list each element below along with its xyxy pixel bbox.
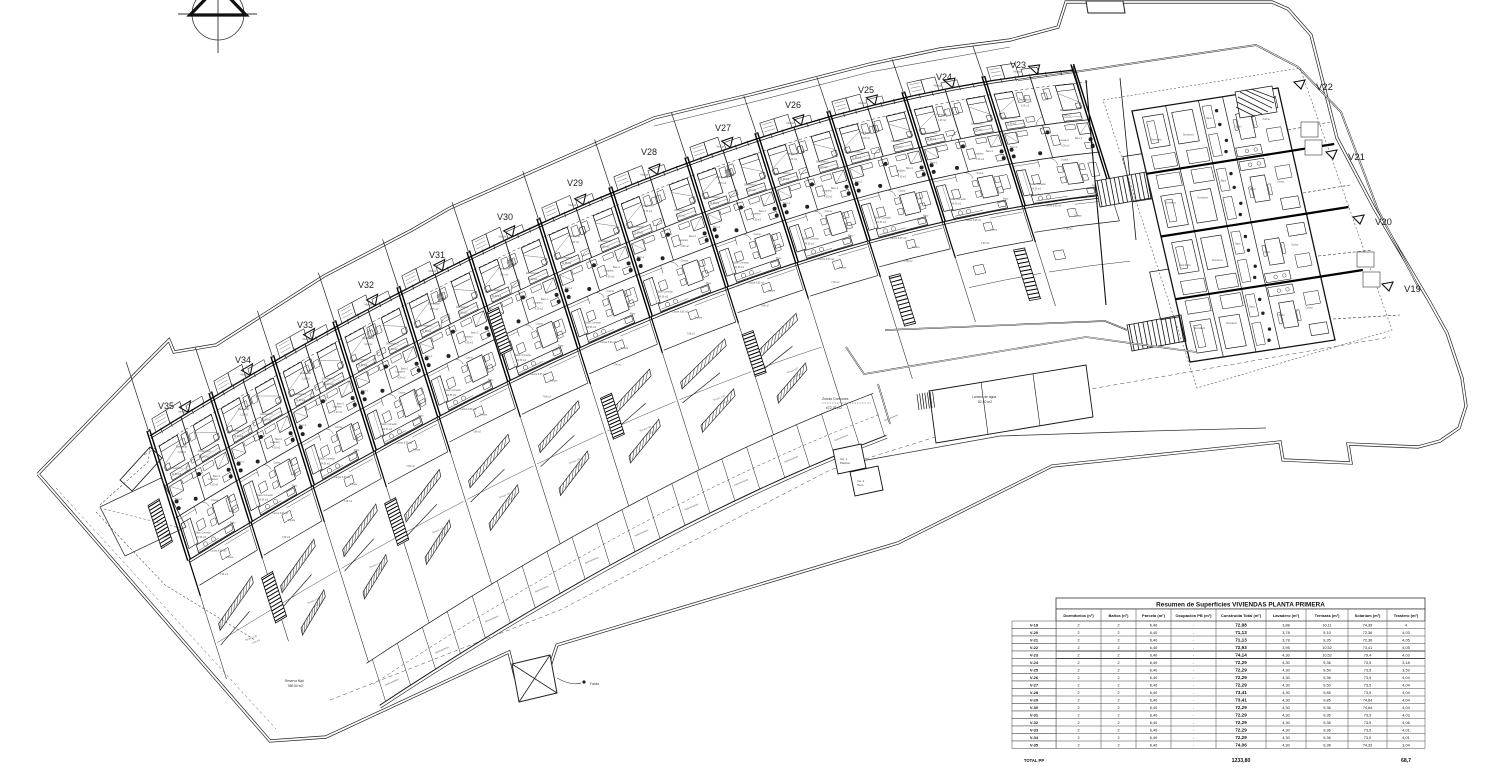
svg-text:Dormitorio 1: Dormitorio 1 — [1005, 117, 1018, 120]
svg-text:Bano 1: Bano 1 — [541, 299, 549, 301]
svg-text:9,36: 9,36 — [1323, 661, 1330, 665]
svg-text:Cocina: Cocina — [825, 211, 833, 213]
svg-text:Piscina: Piscina — [840, 461, 850, 465]
svg-text:3,25 m2: 3,25 m2 — [644, 211, 653, 213]
svg-text:Dormitorio: Dormitorio — [1151, 139, 1162, 142]
svg-text:V-27: V-27 — [1030, 682, 1039, 687]
svg-text:2: 2 — [1077, 721, 1079, 725]
svg-text:3,25 m2: 3,25 m2 — [430, 309, 439, 311]
svg-text:4,01: 4,01 — [1402, 736, 1409, 740]
svg-text:68,7: 68,7 — [1401, 758, 1411, 764]
svg-text:3,59: 3,59 — [1402, 668, 1409, 672]
svg-text:-: - — [1193, 728, 1195, 732]
svg-text:7,96 m2: 7,96 m2 — [831, 282, 840, 284]
svg-text:73,5: 73,5 — [1364, 668, 1371, 672]
svg-text:-: - — [1193, 623, 1195, 627]
svg-text:2: 2 — [1117, 691, 1119, 695]
svg-text:11,98 m2: 11,98 m2 — [852, 157, 862, 159]
svg-text:3,78: 3,78 — [1282, 631, 1289, 635]
svg-text:24,56 m2: 24,56 m2 — [383, 429, 393, 431]
svg-text:-: - — [1193, 661, 1195, 665]
svg-text:10,45 m2: 10,45 m2 — [458, 313, 468, 315]
svg-text:Terraza: Terraza — [912, 246, 920, 249]
svg-text:Dormitorio 1: Dormitorio 1 — [294, 393, 307, 396]
svg-text:Salon Comedor: Salon Comedor — [657, 291, 673, 294]
svg-text:Baños (nº): Baños (nº) — [1109, 613, 1130, 618]
svg-text:2: 2 — [1117, 698, 1119, 702]
svg-text:V-30: V-30 — [1030, 705, 1039, 710]
svg-text:Aparcamiento: Aparcamiento — [484, 615, 499, 624]
svg-text:Dormitorio 2: Dormitorio 2 — [526, 272, 539, 275]
svg-text:10,45 m2: 10,45 m2 — [1062, 116, 1072, 118]
svg-text:9,36: 9,36 — [1323, 676, 1330, 680]
svg-text:Bano 2: Bano 2 — [930, 163, 938, 165]
svg-text:Dormitorio: Dormitorio — [1194, 327, 1205, 330]
svg-text:Cocina 8,05 m2: Cocina 8,05 m2 — [748, 282, 765, 284]
svg-text:10,52: 10,52 — [1322, 653, 1332, 657]
svg-text:Paso: Paso — [630, 314, 636, 316]
svg-text:4,05: 4,05 — [1402, 646, 1409, 650]
svg-text:Paso: Paso — [1003, 199, 1009, 201]
svg-text:Dormitorio: Dormitorio — [1226, 322, 1237, 325]
svg-text:24,56 m2: 24,56 m2 — [659, 296, 669, 298]
svg-text:Terraza: Terraza — [1074, 214, 1082, 217]
svg-text:11,98 m2: 11,98 m2 — [358, 365, 368, 367]
svg-text:7,96 m2: 7,96 m2 — [981, 243, 990, 245]
svg-text:7,96 m2: 7,96 m2 — [282, 537, 291, 539]
svg-text:4,30 m2: 4,30 m2 — [753, 219, 762, 221]
svg-text:Mirador: Mirador — [787, 122, 795, 125]
svg-text:Cocina 8,05 m2: Cocina 8,05 m2 — [334, 477, 351, 479]
svg-text:Cocina: Cocina — [681, 261, 689, 263]
svg-text:73,41: 73,41 — [1235, 690, 1247, 695]
svg-text:Mirador: Mirador — [241, 374, 249, 377]
svg-text:11,98 m2: 11,98 m2 — [634, 232, 644, 234]
svg-text:Paso: Paso — [706, 283, 712, 285]
svg-text:Cocina 8,05 m2: Cocina 8,05 m2 — [965, 220, 982, 222]
svg-text:10,45 m2: 10,45 m2 — [200, 457, 210, 459]
svg-text:72,29: 72,29 — [1235, 712, 1247, 717]
svg-text:3,25 m2: 3,25 m2 — [240, 415, 249, 417]
svg-text:2: 2 — [1077, 736, 1079, 740]
svg-text:24,56 m2: 24,56 m2 — [587, 327, 597, 329]
svg-text:Terraza: Terraza — [838, 266, 846, 269]
svg-text:Aparcamiento: Aparcamiento — [584, 556, 599, 565]
svg-text:Mirador: Mirador — [365, 304, 373, 307]
svg-text:Lavadero: Lavadero — [533, 302, 543, 305]
svg-text:9,36: 9,36 — [1323, 706, 1330, 710]
svg-text:Salon Comedor: Salon Comedor — [445, 389, 461, 392]
svg-text:4,30: 4,30 — [1282, 691, 1289, 695]
svg-text:2: 2 — [1077, 706, 1079, 710]
svg-text:V19: V19 — [1404, 284, 1421, 295]
svg-text:4,30 m2: 4,30 m2 — [976, 159, 985, 161]
svg-text:3,88: 3,88 — [1282, 623, 1289, 627]
svg-text:Bano: Bano — [1221, 181, 1227, 183]
svg-text:-: - — [1193, 721, 1195, 725]
svg-text:2: 2 — [1117, 713, 1119, 717]
svg-text:4,30: 4,30 — [1282, 713, 1289, 717]
svg-text:Dormitorio 1: Dormitorio 1 — [356, 359, 369, 362]
svg-text:Lavadero: Lavadero — [974, 152, 984, 155]
svg-text:-: - — [1193, 668, 1195, 672]
svg-text:Bano 1: Bano 1 — [759, 211, 767, 213]
svg-text:73,5: 73,5 — [1364, 713, 1371, 717]
svg-text:Lavadero: Lavadero — [332, 405, 342, 408]
svg-text:Bano 1: Bano 1 — [689, 236, 697, 238]
svg-text:3,25 m2: 3,25 m2 — [364, 344, 373, 346]
svg-text:Terraza: Terraza — [349, 483, 357, 486]
svg-text:4,03: 4,03 — [1402, 653, 1409, 657]
svg-text:2: 2 — [1077, 713, 1079, 717]
svg-text:V-22: V-22 — [1030, 645, 1039, 650]
svg-text:Cocina 8,05 m2: Cocina 8,05 m2 — [210, 550, 227, 552]
svg-text:2: 2 — [1077, 623, 1079, 627]
svg-text:24,56 m2: 24,56 m2 — [197, 537, 207, 539]
svg-text:11,98 m2: 11,98 m2 — [492, 296, 502, 298]
svg-text:2: 2 — [1117, 653, 1119, 657]
svg-text:Dormitorio 2: Dormitorio 2 — [260, 413, 273, 416]
svg-text:73,5: 73,5 — [1364, 683, 1371, 687]
svg-text:Bano 2: Bano 2 — [565, 288, 573, 290]
svg-text:Dormitorios (nº): Dormitorios (nº) — [1063, 613, 1094, 618]
svg-text:Bano 1: Bano 1 — [986, 151, 994, 153]
svg-text:6,40: 6,40 — [1150, 683, 1157, 687]
svg-text:Bano 2: Bano 2 — [855, 181, 863, 183]
svg-text:V-23: V-23 — [1030, 652, 1039, 657]
svg-text:Cocina: Cocina — [1263, 119, 1271, 121]
svg-text:Distribuidor: Distribuidor — [569, 235, 581, 238]
svg-text:Terraza: Terraza — [989, 228, 997, 231]
svg-text:2: 2 — [1077, 653, 1079, 657]
svg-text:9,36: 9,36 — [1323, 743, 1330, 747]
svg-text:73,5: 73,5 — [1364, 661, 1371, 665]
svg-text:Cocina 8,05 m2: Cocina 8,05 m2 — [600, 342, 617, 344]
svg-text:V20: V20 — [1375, 217, 1392, 228]
svg-text:V-28: V-28 — [1030, 690, 1039, 695]
svg-text:74,06: 74,06 — [1235, 742, 1247, 747]
svg-text:Dormitorio 2: Dormitorio 2 — [322, 377, 335, 380]
svg-text:4,30 m2: 4,30 m2 — [1061, 146, 1070, 148]
svg-text:72,36: 72,36 — [1363, 631, 1373, 635]
svg-text:TOTAL PP: TOTAL PP — [1024, 758, 1044, 763]
svg-text:V33: V33 — [297, 320, 313, 330]
svg-text:7,96 m2: 7,96 m2 — [904, 261, 913, 263]
svg-text:Distribuidor: Distribuidor — [787, 153, 799, 156]
svg-text:Mirador: Mirador — [641, 174, 649, 177]
svg-text:73,5: 73,5 — [1364, 721, 1371, 725]
svg-text:4,04: 4,04 — [1402, 676, 1409, 680]
svg-text:Aparcamiento: Aparcamiento — [634, 529, 649, 538]
svg-text:Bano 1: Bano 1 — [906, 168, 914, 170]
svg-text:2: 2 — [1077, 646, 1079, 650]
svg-text:4,30: 4,30 — [1282, 668, 1289, 672]
svg-text:7,96 m2: 7,96 m2 — [543, 397, 552, 399]
svg-text:Salon Comedor: Salon Comedor — [733, 261, 749, 264]
svg-text:Mirador: Mirador — [934, 84, 942, 87]
svg-text:2: 2 — [1117, 631, 1119, 635]
svg-text:11,98 m2: 11,98 m2 — [422, 331, 432, 333]
svg-text:Cocina: Cocina — [1061, 159, 1069, 161]
svg-text:Bano 2: Bano 2 — [1010, 147, 1018, 149]
svg-text:V28: V28 — [641, 147, 657, 157]
svg-text:Cocina 8,05 m2: Cocina 8,05 m2 — [272, 513, 289, 515]
svg-text:-: - — [1193, 706, 1195, 710]
svg-text:4,30: 4,30 — [1282, 743, 1289, 747]
svg-text:Cocina: Cocina — [607, 291, 615, 293]
svg-text:3,25 m2: 3,25 m2 — [571, 242, 580, 244]
svg-text:-: - — [1193, 638, 1195, 642]
svg-text:71,13: 71,13 — [1235, 630, 1247, 635]
svg-text:Lavadero: Lavadero — [822, 190, 832, 193]
svg-text:9,36: 9,36 — [1323, 713, 1330, 717]
svg-text:Construida Total (m²): Construida Total (m²) — [1221, 613, 1262, 618]
svg-text:Cocina 8,05 m2: Cocina 8,05 m2 — [672, 311, 689, 313]
svg-text:7,96 m2: 7,96 m2 — [687, 334, 696, 336]
svg-text:Lavadero: Lavadero — [896, 170, 906, 173]
svg-text:Terraza: Terraza — [767, 290, 775, 293]
svg-text:V-19: V-19 — [1030, 622, 1039, 627]
svg-text:Bano 2: Bano 2 — [783, 203, 791, 205]
svg-text:Aparcamiento: Aparcamiento — [734, 478, 749, 487]
svg-text:Salon: Salon — [1250, 189, 1257, 191]
svg-text:Dormitorio 1: Dormitorio 1 — [850, 151, 863, 154]
svg-text:6,40: 6,40 — [1150, 706, 1157, 710]
svg-text:72,29: 72,29 — [1235, 675, 1247, 680]
svg-text:4,30: 4,30 — [1282, 706, 1289, 710]
svg-text:4,50 m2: 4,50 m2 — [252, 639, 261, 644]
svg-text:V-35: V-35 — [1030, 742, 1039, 747]
svg-text:Aparcamiento: Aparcamiento — [435, 646, 450, 655]
svg-text:3,78: 3,78 — [1282, 638, 1289, 642]
svg-text:Lavadero: Lavadero — [395, 371, 405, 374]
svg-text:Lavadero: Lavadero — [463, 336, 473, 339]
svg-text:Salon: Salon — [1279, 315, 1286, 317]
svg-text:11,98 m2: 11,98 m2 — [780, 179, 790, 181]
svg-text:9,50: 9,50 — [1323, 668, 1330, 672]
svg-text:Cocina: Cocina — [273, 463, 281, 465]
svg-text:7,96 m2: 7,96 m2 — [613, 364, 622, 366]
svg-text:-: - — [1193, 691, 1195, 695]
svg-text:2: 2 — [1077, 683, 1079, 687]
svg-text:72,93: 72,93 — [1235, 645, 1247, 650]
svg-text:Paso: Paso — [923, 215, 929, 217]
svg-text:3,95: 3,95 — [1282, 646, 1289, 650]
svg-text:672,26 m2: 672,26 m2 — [826, 406, 842, 410]
svg-text:9,36: 9,36 — [1323, 728, 1330, 732]
svg-text:6,40: 6,40 — [1150, 728, 1157, 732]
svg-text:Dormitorio 1: Dormitorio 1 — [490, 289, 503, 292]
svg-text:Bano 2: Bano 2 — [175, 499, 183, 501]
svg-text:Salon Comedor: Salon Comedor — [1030, 183, 1046, 186]
svg-text:Lavadero: Lavadero — [604, 270, 614, 273]
svg-text:Salon: Salon — [1236, 126, 1243, 128]
svg-text:Lavadero: Lavadero — [1059, 139, 1069, 142]
svg-text:Dormitorio 1: Dormitorio 1 — [925, 132, 938, 135]
svg-text:24,56 m2: 24,56 m2 — [877, 222, 887, 224]
svg-text:V25: V25 — [858, 85, 874, 95]
svg-text:Salon Comedor: Salon Comedor — [319, 458, 335, 461]
svg-text:Dormitorio 2: Dormitorio 2 — [674, 209, 687, 212]
svg-text:Bano 2: Bano 2 — [713, 227, 721, 229]
svg-text:Bano 2: Bano 2 — [299, 425, 307, 427]
svg-text:74,64: 74,64 — [1363, 706, 1373, 710]
svg-text:3,25 m2: 3,25 m2 — [1021, 105, 1030, 107]
svg-text:-: - — [1193, 631, 1195, 635]
svg-text:7,96 m2: 7,96 m2 — [344, 501, 353, 503]
svg-text:Aparcamiento: Aparcamiento — [534, 585, 549, 594]
svg-text:Cocina: Cocina — [536, 323, 544, 325]
svg-text:Lavadero: Lavadero — [208, 478, 218, 481]
svg-text:Cocina: Cocina — [211, 500, 219, 502]
svg-text:Mirador: Mirador — [859, 102, 867, 105]
svg-text:Bano 2: Bano 2 — [637, 257, 645, 259]
svg-text:2: 2 — [1077, 638, 1079, 642]
svg-text:4,30 m2: 4,30 m2 — [824, 197, 833, 199]
svg-text:Bano 2: Bano 2 — [425, 356, 433, 358]
svg-text:71,13: 71,13 — [1235, 637, 1247, 642]
svg-text:4,30 m2: 4,30 m2 — [334, 412, 343, 414]
svg-text:7,96 m2: 7,96 m2 — [761, 306, 770, 308]
svg-text:4,30: 4,30 — [1282, 698, 1289, 702]
svg-text:Salon Comedor: Salon Comedor — [257, 494, 273, 497]
svg-text:7,96 m2: 7,96 m2 — [473, 431, 482, 433]
svg-text:74,39: 74,39 — [1363, 623, 1373, 627]
svg-text:24,56 m2: 24,56 m2 — [952, 204, 962, 206]
svg-text:6,40: 6,40 — [1150, 721, 1157, 725]
svg-text:6,40: 6,40 — [1150, 691, 1157, 695]
svg-text:Dormitorio: Dormitorio — [1180, 264, 1191, 267]
svg-text:4,06: 4,06 — [1402, 721, 1409, 725]
svg-text:2: 2 — [1077, 691, 1079, 695]
svg-text:Paso: Paso — [354, 450, 360, 452]
svg-text:Dormitorio 2: Dormitorio 2 — [891, 140, 904, 143]
svg-text:Cocina 8,05 m2: Cocina 8,05 m2 — [1045, 206, 1062, 208]
svg-text:Dormitorio: Dormitorio — [1212, 259, 1223, 262]
svg-text:74,64: 74,64 — [1363, 698, 1373, 702]
svg-text:2: 2 — [1117, 646, 1119, 650]
svg-text:11,98 m2: 11,98 m2 — [562, 263, 572, 265]
svg-text:Aparcamiento: Aparcamiento — [784, 455, 799, 464]
svg-text:Lavadero (m²): Lavadero (m²) — [1273, 613, 1300, 618]
svg-text:Cocina 8,05 m2: Cocina 8,05 m2 — [890, 238, 907, 240]
svg-text:6,40: 6,40 — [1150, 668, 1157, 672]
svg-text:2: 2 — [1077, 631, 1079, 635]
svg-text:6,40: 6,40 — [1150, 631, 1157, 635]
svg-text:Mirador: Mirador — [1014, 70, 1022, 73]
svg-text:6,40: 6,40 — [1150, 646, 1157, 650]
svg-text:Paso: Paso — [292, 486, 298, 488]
svg-text:4,30 m2: 4,30 m2 — [606, 276, 615, 278]
svg-text:2: 2 — [1117, 736, 1119, 740]
svg-text:Distribuidor: Distribuidor — [716, 176, 728, 179]
svg-text:72,29: 72,29 — [1235, 705, 1247, 710]
svg-text:Aparcamiento: Aparcamiento — [684, 503, 699, 512]
svg-text:6,40: 6,40 — [1150, 743, 1157, 747]
svg-text:4,30: 4,30 — [1282, 683, 1289, 687]
svg-text:Paso: Paso — [230, 522, 236, 524]
svg-text:6,40: 6,40 — [1150, 638, 1157, 642]
svg-text:3,25 m2: 3,25 m2 — [718, 183, 727, 185]
svg-text:79,4: 79,4 — [1364, 653, 1371, 657]
svg-text:72,98: 72,98 — [1235, 622, 1247, 627]
svg-text:2: 2 — [1077, 668, 1079, 672]
svg-text:Salon Comedor: Salon Comedor — [585, 322, 601, 325]
svg-text:9,85: 9,85 — [1323, 698, 1330, 702]
svg-text:3,25 m2: 3,25 m2 — [789, 159, 798, 161]
svg-text:74,33: 74,33 — [1363, 743, 1373, 747]
svg-text:Dormitorio 2: Dormitorio 2 — [816, 160, 829, 163]
svg-text:Mirador: Mirador — [429, 270, 437, 273]
svg-text:Paso: Paso — [848, 235, 854, 237]
svg-text:V30: V30 — [497, 212, 513, 222]
svg-text:Bano: Bano — [1206, 118, 1212, 120]
svg-text:V-21: V-21 — [1030, 637, 1039, 642]
svg-text:2: 2 — [1077, 661, 1079, 665]
svg-text:Lamina de agua: Lamina de agua — [972, 395, 996, 399]
svg-text:10,45 m2: 10,45 m2 — [324, 384, 334, 386]
svg-text:Terraza: Terraza — [225, 556, 233, 559]
svg-text:Dormitorio 1: Dormitorio 1 — [708, 196, 721, 199]
svg-text:Dormitorio 2: Dormitorio 2 — [386, 342, 399, 345]
svg-text:V26: V26 — [785, 100, 801, 110]
svg-text:Cocina: Cocina — [1277, 182, 1285, 184]
svg-text:24,56 m2: 24,56 m2 — [321, 464, 331, 466]
svg-text:Bano 1: Bano 1 — [337, 404, 345, 406]
svg-text:Distribuidor: Distribuidor — [362, 337, 374, 340]
svg-text:4,05: 4,05 — [1402, 638, 1409, 642]
svg-text:V-34: V-34 — [1030, 735, 1039, 740]
svg-text:Distribuidor: Distribuidor — [238, 408, 250, 411]
svg-text:2: 2 — [1117, 661, 1119, 665]
svg-text:Lavadero: Lavadero — [270, 441, 280, 444]
svg-text:Dormitorio 1: Dormitorio 1 — [170, 467, 183, 470]
svg-text:4,30 m2: 4,30 m2 — [210, 485, 219, 487]
svg-text:Terraza: Terraza — [479, 414, 487, 417]
svg-text:6,40: 6,40 — [1150, 698, 1157, 702]
svg-text:4,30 m2: 4,30 m2 — [680, 246, 689, 248]
svg-text:Distribuidor: Distribuidor — [860, 131, 872, 134]
svg-text:9,36: 9,36 — [1323, 721, 1330, 725]
svg-text:Bano 1: Bano 1 — [1075, 138, 1083, 140]
svg-text:3,25 m2: 3,25 m2 — [862, 138, 871, 140]
svg-text:2: 2 — [1077, 728, 1079, 732]
svg-text:Bano: Bano — [1235, 244, 1241, 246]
svg-text:4,30 m2: 4,30 m2 — [397, 377, 406, 379]
svg-text:Paso: Paso — [776, 258, 782, 260]
svg-text:Bano 1: Bano 1 — [471, 333, 479, 335]
svg-text:Paso: Paso — [488, 379, 494, 381]
svg-text:V35: V35 — [158, 401, 174, 411]
svg-text:Salon Comedor: Salon Comedor — [381, 423, 397, 426]
svg-text:24,56 m2: 24,56 m2 — [447, 395, 457, 397]
svg-text:V23: V23 — [1010, 60, 1026, 70]
svg-text:10,45 m2: 10,45 m2 — [818, 167, 828, 169]
svg-text:10,45 m2: 10,45 m2 — [388, 349, 398, 351]
svg-text:9,10: 9,10 — [1323, 631, 1330, 635]
svg-text:1233,80: 1233,80 — [1232, 758, 1251, 764]
svg-text:-: - — [1193, 653, 1195, 657]
svg-text:2: 2 — [1117, 668, 1119, 672]
svg-text:4: 4 — [1405, 623, 1407, 627]
svg-text:2: 2 — [1117, 676, 1119, 680]
svg-text:2: 2 — [1117, 728, 1119, 732]
svg-text:Resumen de Superficies VIVIEND: Resumen de Superficies VIVIENDAS PLANTA … — [1156, 602, 1325, 609]
svg-text:2: 2 — [1077, 743, 1079, 747]
svg-text:Bano: Bano — [1250, 306, 1256, 308]
svg-text:4,30: 4,30 — [1282, 676, 1289, 680]
svg-text:Salon Comedor: Salon Comedor — [950, 198, 966, 201]
